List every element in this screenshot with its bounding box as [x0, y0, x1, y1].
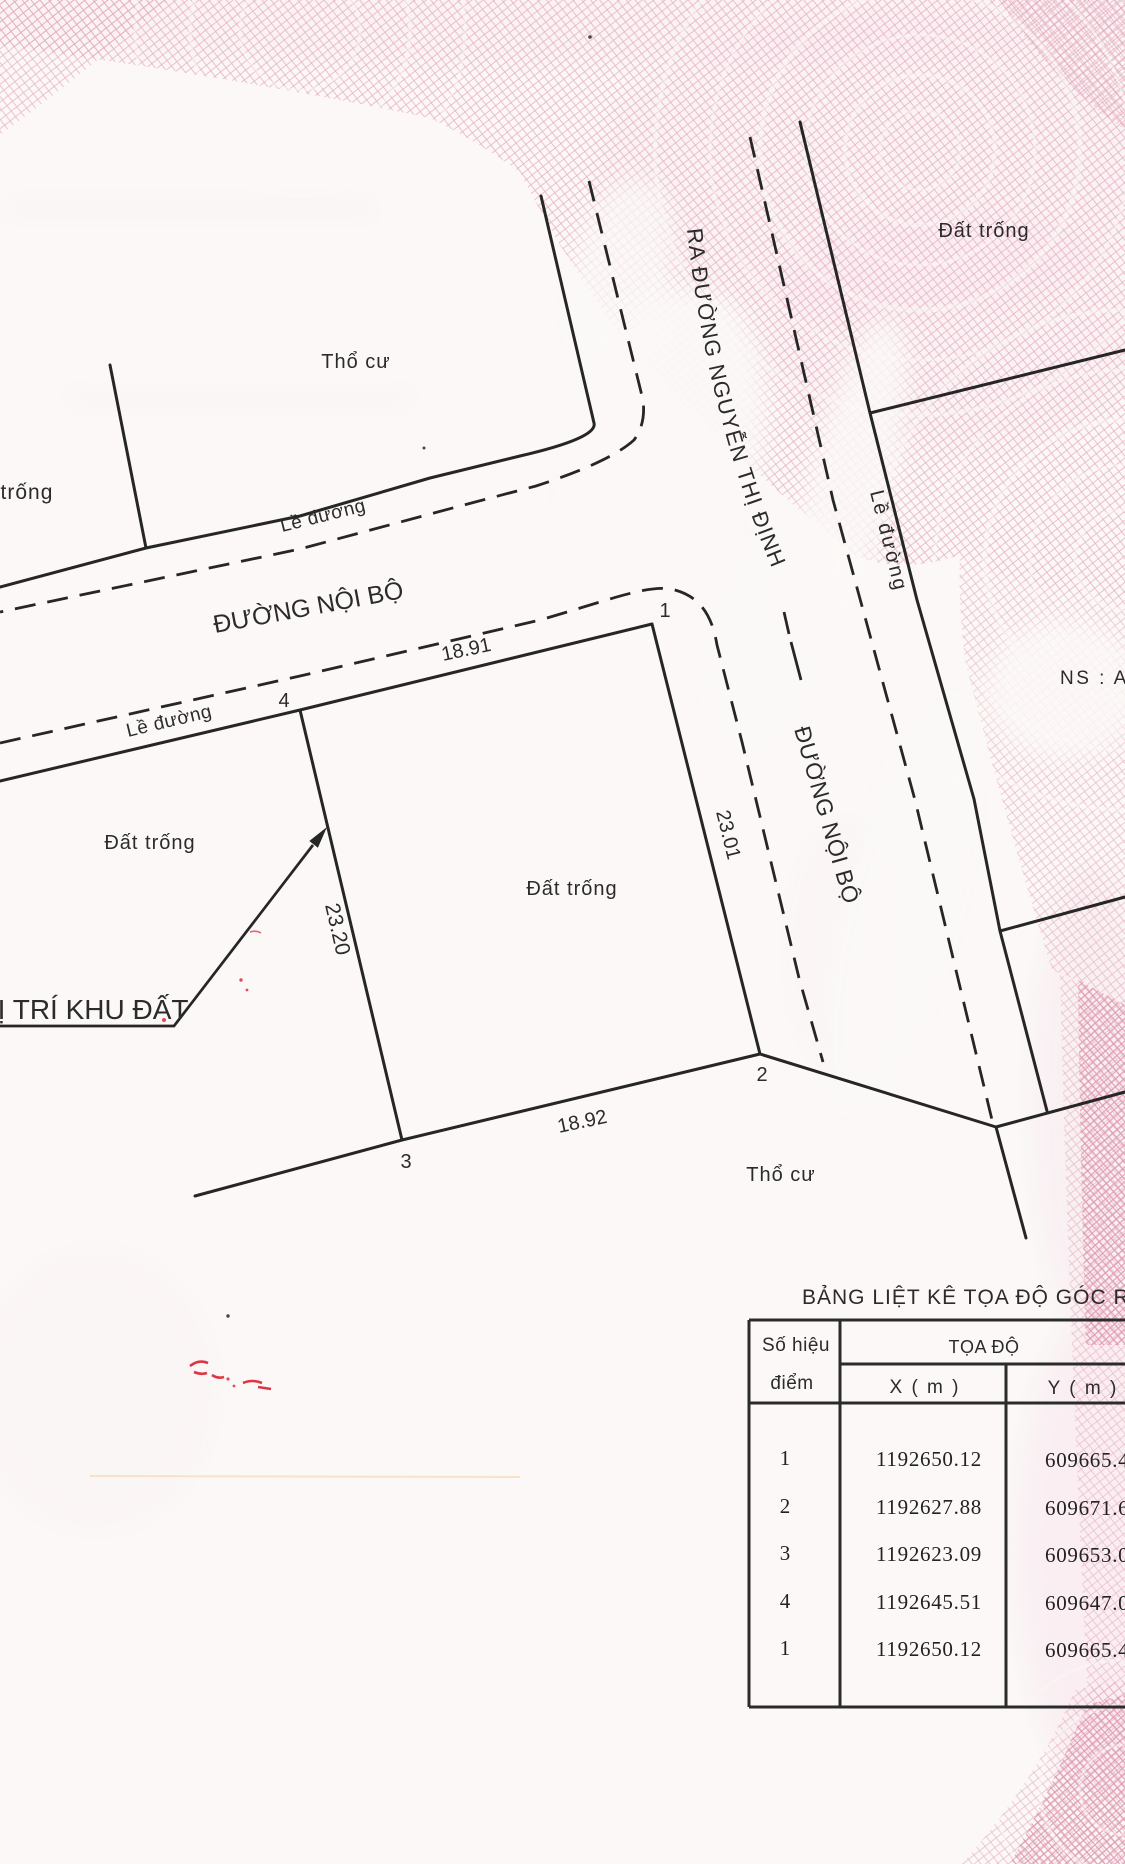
svg-text:1192623.09: 1192623.09 [876, 1542, 982, 1566]
svg-text:609653.09: 609653.09 [1045, 1543, 1125, 1567]
svg-text:2: 2 [780, 1494, 791, 1518]
svg-text:2: 2 [756, 1064, 767, 1086]
svg-text:Thổ cư: Thổ cư [321, 351, 390, 373]
svg-text:4: 4 [780, 1589, 791, 1613]
svg-text:1: 1 [780, 1446, 791, 1470]
svg-text:Thổ cư: Thổ cư [746, 1164, 815, 1186]
svg-text:1: 1 [659, 600, 670, 622]
svg-text:điểm: điểm [770, 1373, 813, 1394]
svg-text:Đất trống: Đất trống [938, 220, 1029, 242]
svg-text:3: 3 [400, 1151, 411, 1173]
svg-text:Số hiệu: Số hiệu [762, 1335, 830, 1356]
svg-text:4: 4 [278, 690, 289, 712]
svg-text:609665.49: 609665.49 [1045, 1448, 1125, 1472]
svg-text:1: 1 [780, 1636, 791, 1660]
svg-text:1192645.51: 1192645.51 [876, 1590, 982, 1614]
svg-text:X ( m ): X ( m ) [890, 1377, 961, 1398]
svg-text:Y ( m ): Y ( m ) [1048, 1378, 1119, 1399]
svg-text:Đất trống: Đất trống [104, 832, 195, 854]
svg-text:1192650.12: 1192650.12 [876, 1637, 982, 1661]
svg-text:TỌA ĐỘ: TỌA ĐỘ [948, 1336, 1019, 1357]
svg-text:Đất trống: Đất trống [0, 481, 53, 504]
svg-text:609647.07: 609647.07 [1045, 1591, 1125, 1615]
svg-text:3: 3 [780, 1541, 791, 1565]
svg-text:1192627.88: 1192627.88 [876, 1495, 982, 1519]
svg-text:609671.68: 609671.68 [1045, 1496, 1125, 1520]
svg-text:NS : A 8: NS : A 8 [1060, 668, 1125, 689]
svg-text:609665.49: 609665.49 [1045, 1638, 1125, 1662]
svg-text:BẢNG LIỆT KÊ TỌA ĐỘ GÓC RANH: BẢNG LIỆT KÊ TỌA ĐỘ GÓC RANH [802, 1286, 1125, 1309]
svg-text:Đất trống: Đất trống [526, 878, 617, 900]
svg-text:VỊ TRÍ KHU ĐẤT: VỊ TRÍ KHU ĐẤT [0, 994, 189, 1025]
svg-text:1192650.12: 1192650.12 [876, 1447, 982, 1471]
